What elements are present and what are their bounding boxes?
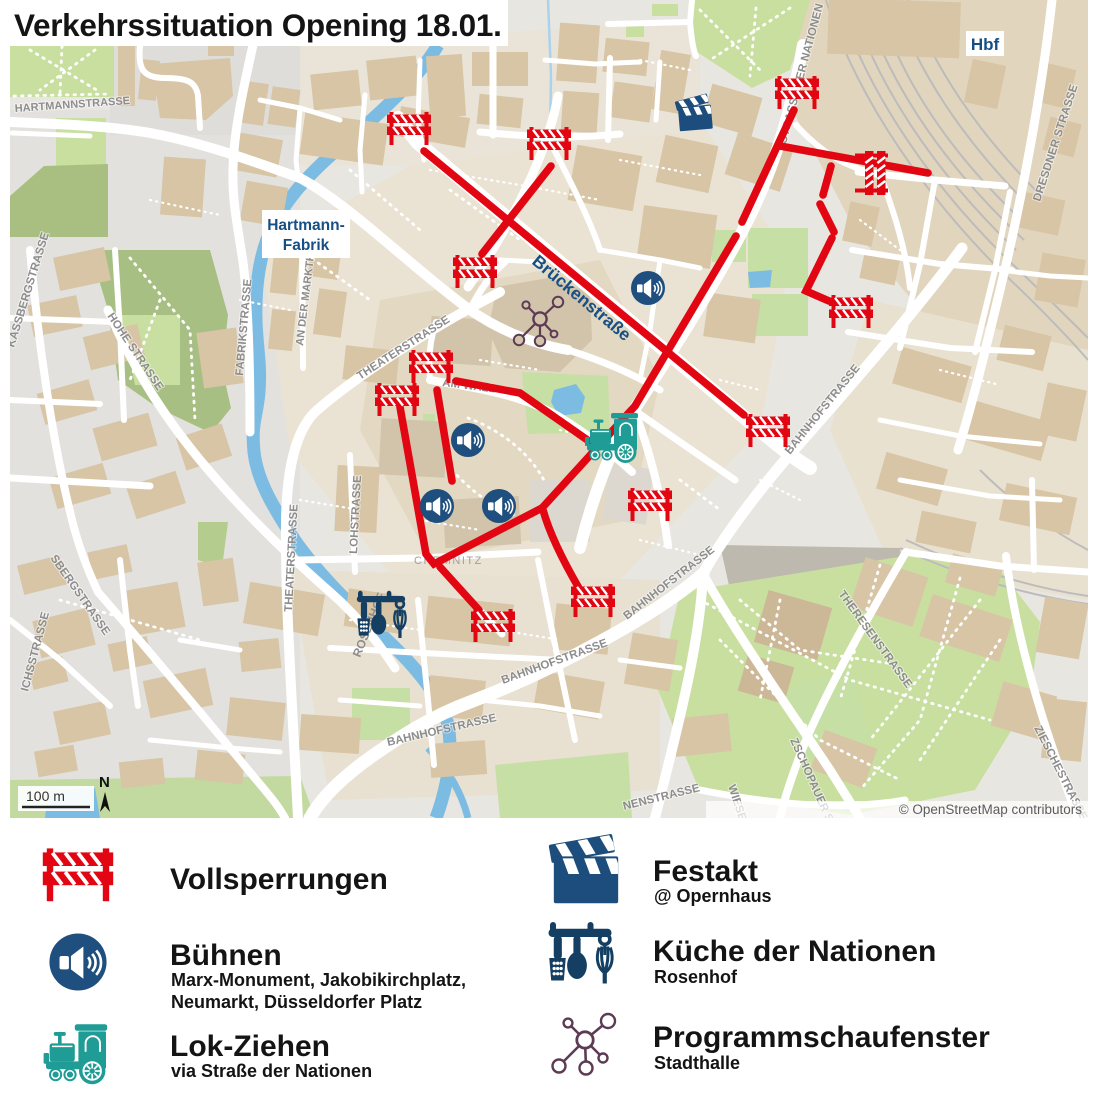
svg-text:Hbf: Hbf [971,35,1000,54]
svg-text:Rosenhof: Rosenhof [654,967,738,987]
svg-text:Bühnen: Bühnen [170,939,282,972]
svg-text:Marx-Monument, Jakobikirchplat: Marx-Monument, Jakobikirchplatz, [171,970,466,990]
svg-text:© OpenStreetMap contributors: © OpenStreetMap contributors [899,802,1083,817]
svg-text:Programmschaufenster: Programmschaufenster [653,1021,990,1054]
svg-text:Hartmann-: Hartmann- [267,217,345,234]
svg-text:N: N [99,774,110,791]
svg-text:@ Opernhaus: @ Opernhaus [654,886,772,906]
svg-text:100 m: 100 m [26,788,65,804]
svg-text:Neumarkt, Düsseldorfer Platz: Neumarkt, Düsseldorfer Platz [171,992,422,1012]
svg-text:Stadthalle: Stadthalle [654,1053,740,1073]
svg-text:Vollsperrungen: Vollsperrungen [170,863,388,896]
svg-text:Verkehrssituation Opening 18.0: Verkehrssituation Opening 18.01. [14,7,502,43]
svg-text:Küche der Nationen: Küche der Nationen [653,935,936,968]
svg-text:Lok-Ziehen: Lok-Ziehen [170,1030,330,1063]
svg-text:Festakt: Festakt [653,855,758,888]
svg-text:via Straße der Nationen: via Straße der Nationen [171,1061,372,1081]
svg-text:Fabrik: Fabrik [283,237,330,254]
